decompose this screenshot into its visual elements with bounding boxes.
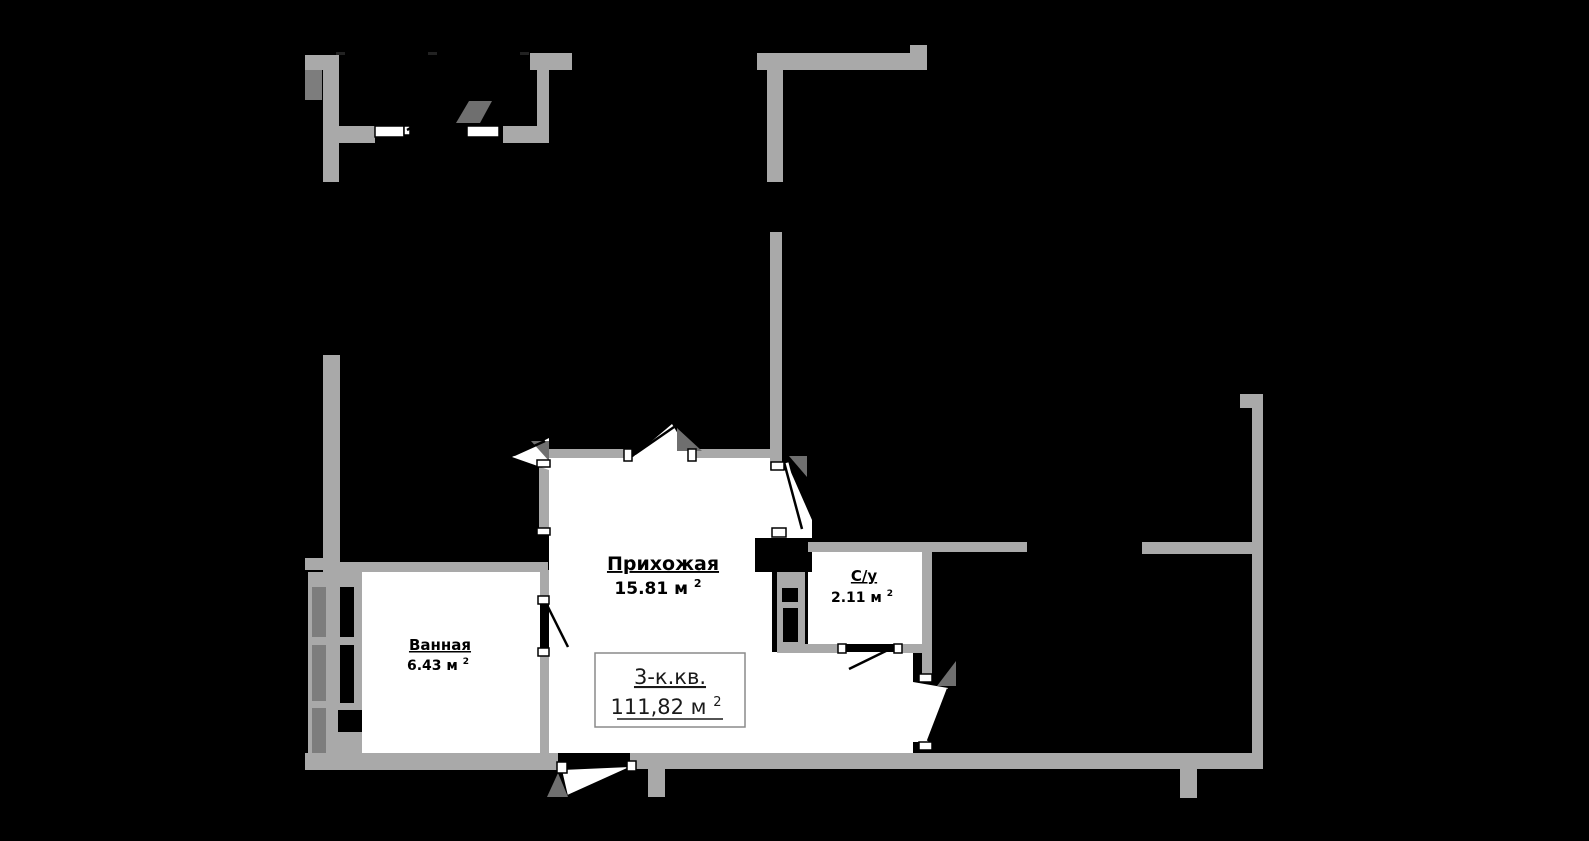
room-area-label-hallway: 15.81 м 2 — [614, 577, 701, 599]
apartment-type-label: 3-к.кв. — [634, 665, 706, 689]
window — [375, 126, 404, 137]
door-jamb — [838, 644, 846, 653]
room-area-hallway-lower-right — [772, 652, 913, 753]
shaft-cell-void — [340, 587, 354, 637]
room-area-sup: 2 — [694, 577, 702, 590]
apartment-total-area-label: 111,82 м 2 — [611, 695, 722, 719]
room-label-hallway: Прихожая — [607, 553, 719, 575]
wall-segment — [340, 562, 548, 572]
door-wedge — [677, 428, 702, 451]
wall-stub — [539, 467, 549, 528]
wall-segment — [305, 753, 558, 770]
room-area-value: 6.43 м — [407, 658, 458, 674]
shaft-cell-void — [782, 588, 798, 602]
wall-segment — [305, 558, 340, 570]
wall-segment — [900, 644, 932, 653]
wall-segment — [1252, 394, 1263, 769]
apartment-total-area-text: 111,82 м — [611, 695, 707, 719]
door-wedge — [937, 661, 956, 686]
wall-segment — [537, 70, 549, 143]
room-label-wc: С/у — [851, 567, 877, 585]
door-jamb — [894, 644, 902, 653]
door-jamb — [627, 761, 636, 771]
floor-plan-canvas: Прихожая 15.81 м 2 С/у 2.11 м 2 Ванная 6… — [0, 0, 1589, 841]
wall-cap — [1240, 394, 1252, 408]
room-name-hallway: Прихожая — [607, 553, 719, 575]
wall-segment — [339, 126, 375, 143]
balcony-door-panel — [456, 101, 492, 123]
wall-segment — [757, 53, 910, 70]
door-jamb — [538, 648, 549, 656]
door-jamb — [404, 126, 410, 135]
dimension-tick — [520, 52, 529, 55]
wall-segment — [690, 449, 775, 458]
door-wedge — [789, 456, 807, 477]
dimension-tick — [336, 52, 345, 55]
room-area-value: 15.81 м — [614, 579, 688, 599]
apartment-type-text: 3-к.кв. — [634, 665, 706, 689]
door-jamb — [537, 460, 550, 467]
room-area-value: 2.11 м — [831, 590, 882, 606]
window — [467, 126, 499, 137]
apartment-total-area-sup: 2 — [713, 695, 721, 710]
wall-segment — [503, 126, 538, 143]
shaft-cell-dark — [312, 645, 326, 701]
wall-stub — [648, 769, 665, 797]
door-jamb — [537, 528, 550, 535]
door-jamb — [557, 762, 567, 773]
wall-segment — [323, 355, 340, 572]
dimension-tick — [428, 52, 437, 55]
wall-segment-dark — [305, 70, 322, 100]
shaft-cell-dark — [312, 587, 326, 637]
wall-segment — [808, 542, 1027, 552]
floor-plan-drawing: Прихожая 15.81 м 2 С/у 2.11 м 2 Ванная 6… — [0, 0, 1589, 841]
door-jamb — [771, 462, 784, 470]
room-name-bathroom: Ванная — [409, 636, 471, 654]
wall-segment — [540, 650, 549, 755]
wall-stub — [1180, 769, 1197, 798]
room-area-sup: 2 — [463, 657, 469, 667]
wall-segment — [547, 449, 630, 458]
door-jamb — [688, 449, 696, 461]
wall-segment — [1142, 542, 1263, 554]
room-area-label-bathroom: 6.43 м 2 — [407, 657, 469, 674]
door-jamb — [919, 674, 932, 682]
wall-segment — [630, 753, 1263, 769]
room-area-label-wc: 2.11 м 2 — [831, 589, 893, 606]
shaft-cell-void — [783, 608, 798, 642]
wall-segment — [767, 70, 783, 182]
room-area-sup: 2 — [887, 589, 893, 599]
shaft-cell-dark — [312, 708, 326, 753]
shaft-cell-void — [338, 710, 362, 732]
door-jamb — [624, 449, 632, 461]
door-leaf — [407, 99, 463, 130]
wall-segment — [323, 55, 339, 182]
shaft-cell-void — [340, 645, 354, 703]
room-label-bathroom: Ванная — [409, 636, 471, 654]
shaft-void — [755, 538, 812, 572]
wall-segment — [770, 232, 782, 470]
door-jamb — [919, 742, 932, 750]
door-jamb — [538, 596, 549, 604]
wall-segment — [922, 552, 932, 646]
wall-segment — [910, 45, 927, 70]
door-jamb — [772, 528, 786, 537]
room-name-wc: С/у — [851, 567, 877, 585]
wall-segment — [530, 53, 572, 70]
